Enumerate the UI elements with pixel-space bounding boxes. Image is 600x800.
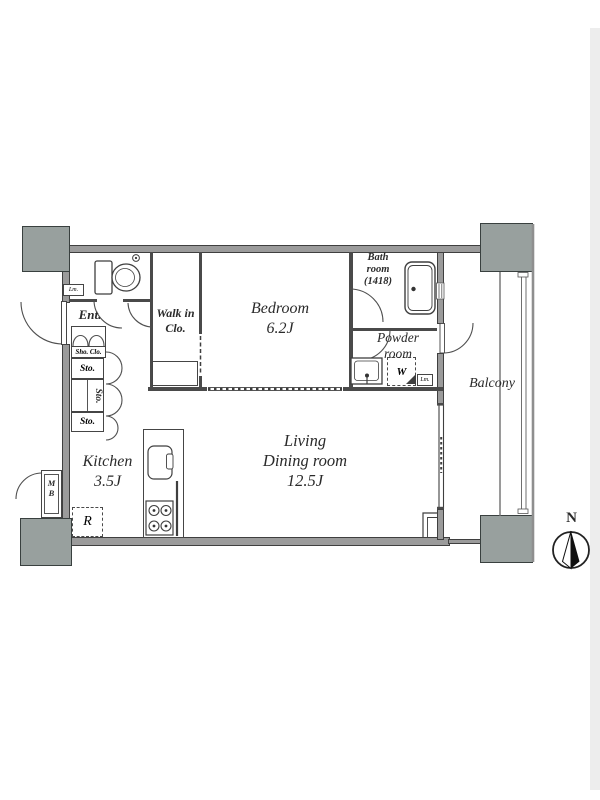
compass-circle xyxy=(553,532,589,568)
bathtub xyxy=(405,262,435,314)
storage-box-1-label: Sto. xyxy=(80,364,95,374)
wall-left-lower xyxy=(62,344,70,520)
shoe-closet-label: Sho. Clo. xyxy=(76,349,102,356)
bedroom-size: 6.2J xyxy=(225,319,335,339)
bathtub-outer xyxy=(405,262,435,314)
pillar-bottom-left xyxy=(20,518,72,566)
meter-box-door-arc xyxy=(16,473,42,499)
wic-cabinet xyxy=(152,361,198,386)
page-edge-band xyxy=(590,28,600,790)
powder-room-label: Powder room xyxy=(358,330,438,363)
linen-shelf-powder: Lm. xyxy=(417,374,433,386)
wall-right-mid xyxy=(437,353,444,404)
bathroom-door-arc xyxy=(350,289,383,322)
walk-in-closet-label: Walk in Clo. xyxy=(148,306,203,335)
bathroom-label: Bath room (1418) xyxy=(352,252,404,288)
balcony-access-door-arc xyxy=(443,323,473,353)
storage-folding-door-arcs xyxy=(106,352,122,440)
partition-toilet-right xyxy=(150,252,153,303)
balcony-label: Balcony xyxy=(446,375,538,392)
storage-box-2-divider xyxy=(87,380,88,411)
storage-box-2-label: Sto. xyxy=(89,381,103,411)
powder-sink-basin xyxy=(355,361,379,381)
wall-top xyxy=(68,245,482,253)
toilet-bowl-inner xyxy=(116,269,135,287)
bathroom-size: (1418) xyxy=(352,276,404,288)
partition-living-north-a xyxy=(148,387,208,391)
entrance-door-leaf xyxy=(62,302,67,345)
shoe-closet-label-box: Sho. Clo. xyxy=(71,346,106,358)
toilet xyxy=(95,255,140,294)
balcony-glass-cap-bottom xyxy=(518,509,528,514)
balcony-glass-cap-top xyxy=(518,273,528,278)
wall-right-lower xyxy=(437,509,444,540)
pillar-bottom-right xyxy=(480,515,533,563)
partition-living-north-b xyxy=(342,387,443,391)
storage-box-3-label: Sto. xyxy=(80,417,95,427)
meter-box-label: M B xyxy=(44,478,59,499)
bedroom-name: Bedroom xyxy=(225,299,335,319)
partition-toilet-bottom-left xyxy=(69,299,97,302)
toilet-tank xyxy=(95,261,112,294)
shoe-closet xyxy=(71,326,106,347)
compass xyxy=(553,531,589,569)
balcony-access-door-leaf xyxy=(440,324,445,354)
bathtub-inner xyxy=(408,266,432,311)
storage-box-1: Sto. xyxy=(71,358,104,379)
kitchen-name: Kitchen xyxy=(60,452,155,472)
compass-north-label: N xyxy=(559,509,584,527)
wall-bottom xyxy=(62,537,450,546)
washing-machine-label: W xyxy=(397,366,407,378)
floor-plan: Sho. Clo. Sto. Sto. Sto. Lm. Lm. M B W R xyxy=(0,0,600,800)
entrance-label: Ent. xyxy=(68,307,112,323)
storage-box-3: Sto. xyxy=(71,412,104,432)
refrigerator-label: R xyxy=(83,514,92,530)
kitchen-size: 3.5J xyxy=(60,472,155,492)
wall-right-upper xyxy=(437,252,444,324)
pillar-top-right xyxy=(480,223,533,272)
kitchen-label: Kitchen 3.5J xyxy=(60,452,155,491)
toilet-light-dot xyxy=(133,255,140,262)
living-dining-size: 12.5J xyxy=(240,471,370,491)
compass-needle-dark xyxy=(571,531,580,569)
linen-shelf-entrance: Lm. xyxy=(63,284,84,296)
toilet-bowl xyxy=(112,264,140,291)
bedroom-sliding-backing xyxy=(207,387,343,391)
balcony-structure xyxy=(500,224,533,562)
bedroom-label: Bedroom 6.2J xyxy=(225,299,335,338)
wic-sliding-backing xyxy=(199,334,203,376)
entrance-door-arc xyxy=(21,302,63,344)
linen-entrance-label: Lm. xyxy=(69,287,78,293)
pillar-top-left xyxy=(22,226,70,272)
partition-toilet-bottom-right xyxy=(123,299,153,302)
refrigerator-space: R xyxy=(72,507,103,537)
compass-needle-light xyxy=(563,531,572,569)
living-dining-label: Living Dining room 12.5J xyxy=(240,431,370,491)
linen-powder-label: Lm. xyxy=(420,377,429,383)
wall-bottom-connector xyxy=(448,539,482,544)
living-room-step xyxy=(423,513,437,537)
bathtub-drain xyxy=(411,287,415,291)
